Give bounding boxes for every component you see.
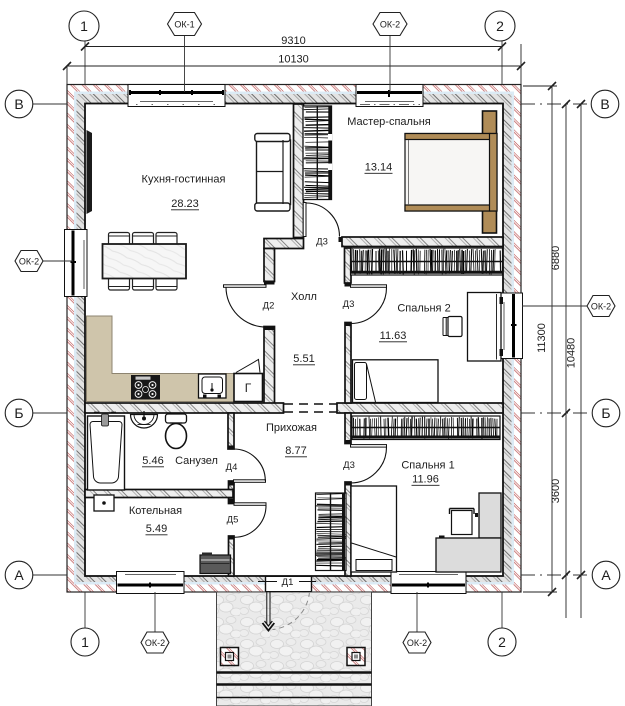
svg-text:Санузел: Санузел [175, 455, 218, 467]
svg-text:Д5: Д5 [227, 515, 239, 526]
svg-text:ОК-2: ОК-2 [407, 638, 427, 648]
svg-text:28.23: 28.23 [171, 198, 199, 210]
svg-text:Д3: Д3 [343, 460, 355, 471]
svg-text:Котельная: Котельная [129, 505, 182, 517]
svg-text:Б: Б [601, 405, 610, 421]
svg-text:11.63: 11.63 [380, 330, 407, 342]
svg-text:9310: 9310 [281, 35, 305, 47]
svg-text:2: 2 [498, 634, 506, 650]
svg-text:6880: 6880 [550, 246, 562, 270]
svg-text:ОК-2: ОК-2 [19, 257, 39, 267]
svg-text:3600: 3600 [550, 479, 562, 503]
svg-text:ОК-2: ОК-2 [145, 638, 165, 648]
svg-text:11300: 11300 [536, 323, 548, 353]
svg-text:Г: Г [245, 381, 252, 395]
svg-text:В: В [14, 96, 23, 112]
svg-text:Кухня-гостинная: Кухня-гостинная [142, 174, 226, 186]
svg-text:Д2: Д2 [263, 301, 275, 312]
svg-text:2: 2 [496, 18, 504, 34]
svg-text:10130: 10130 [278, 54, 309, 66]
svg-text:8.77: 8.77 [285, 445, 306, 457]
svg-text:Спальня 1: Спальня 1 [401, 460, 454, 472]
svg-text:ОК-2: ОК-2 [380, 20, 400, 30]
svg-text:1: 1 [81, 634, 89, 650]
svg-text:1: 1 [80, 18, 88, 34]
svg-text:В: В [600, 96, 609, 112]
svg-text:5.46: 5.46 [142, 455, 163, 467]
svg-text:Д3: Д3 [316, 237, 328, 248]
svg-text:Д1: Д1 [282, 577, 294, 588]
svg-text:Б: Б [14, 405, 23, 421]
svg-text:Спальня 2: Спальня 2 [397, 303, 450, 315]
svg-text:10480: 10480 [566, 338, 578, 369]
svg-text:5.49: 5.49 [146, 523, 167, 535]
svg-text:Прихожая: Прихожая [266, 422, 317, 434]
svg-text:13.14: 13.14 [365, 162, 393, 174]
svg-text:ОК-2: ОК-2 [591, 302, 611, 312]
svg-text:Д3: Д3 [343, 299, 355, 310]
svg-text:А: А [601, 567, 611, 583]
svg-text:А: А [14, 567, 24, 583]
svg-text:11.96: 11.96 [412, 474, 439, 486]
svg-text:Мастер-спальня: Мастер-спальня [347, 116, 431, 128]
svg-text:5.51: 5.51 [293, 353, 314, 365]
svg-text:Д4: Д4 [226, 462, 238, 473]
svg-text:ОК-1: ОК-1 [174, 20, 194, 30]
svg-text:Холл: Холл [291, 291, 317, 303]
